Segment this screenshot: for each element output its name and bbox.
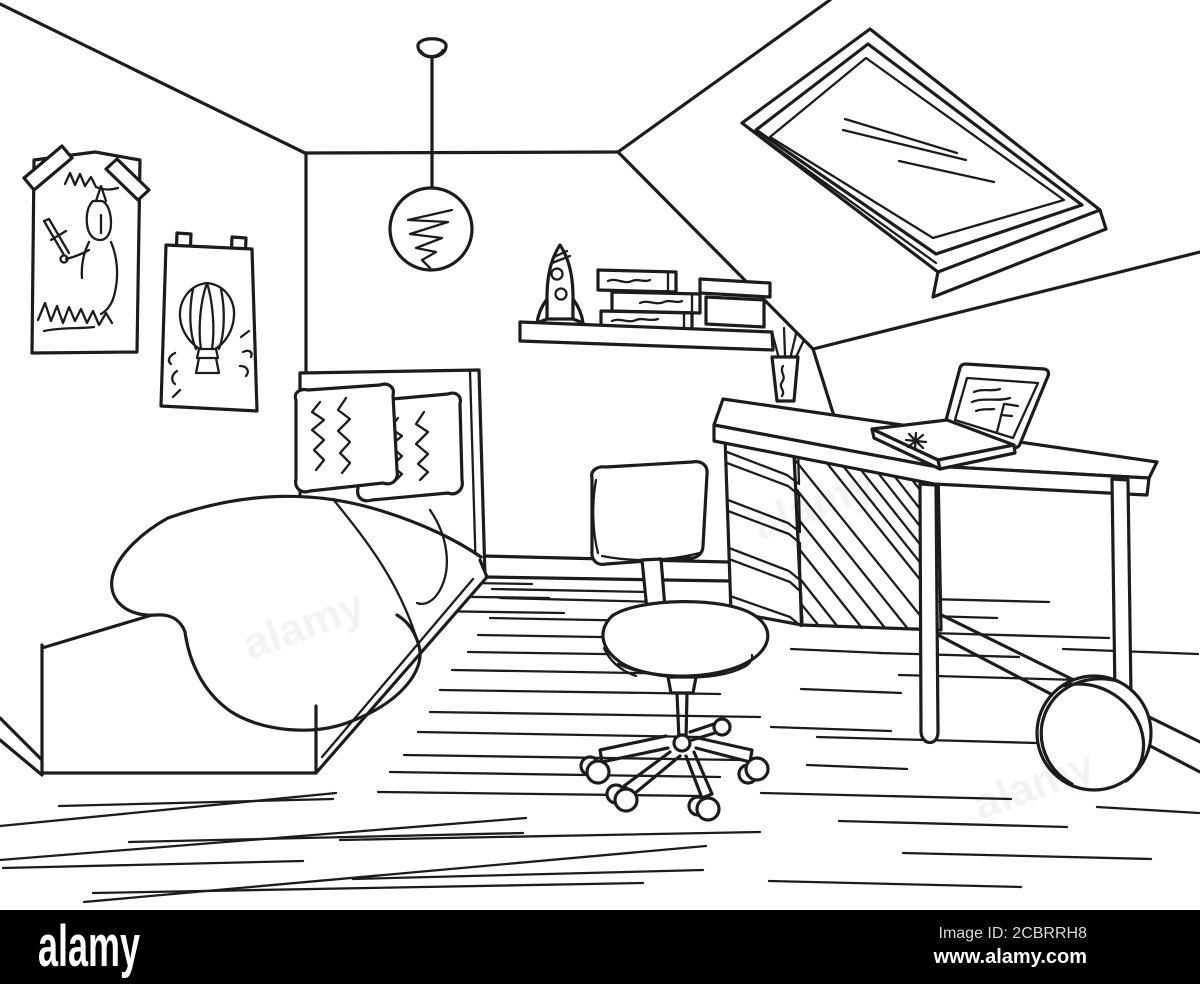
alamy-url: www.alamy.com [934, 946, 1087, 969]
svg-text:alamy: alamy [967, 741, 1101, 830]
bed [42, 370, 487, 773]
hot-air-balloon-poster [161, 233, 257, 411]
alamy-logo: alamy [38, 910, 140, 984]
books [598, 270, 700, 331]
skylight-window [742, 29, 1106, 297]
stock-image-page: alamy alamy alamy alamy Image ID: 2CBRRH… [0, 0, 1200, 984]
watermark-bar: alamy Image ID: 2CBRRH8 www.alamy.com [0, 910, 1200, 984]
storage-box [700, 279, 770, 327]
knight-poster [24, 146, 149, 353]
chair-seat [603, 602, 768, 677]
pen-cup [772, 328, 804, 401]
attic-room-illustration: alamy alamy alamy [0, 0, 1200, 910]
chair-base [581, 719, 768, 820]
desk-leg [920, 484, 938, 743]
wall-shelf [520, 245, 773, 350]
toy-rocket [537, 245, 583, 323]
image-id: Image ID: 2CBRRH8 [934, 925, 1087, 943]
chair-backrest [592, 462, 707, 565]
pendant-lamp [390, 39, 472, 270]
desk-leg [1112, 479, 1131, 695]
pillow [295, 384, 397, 492]
